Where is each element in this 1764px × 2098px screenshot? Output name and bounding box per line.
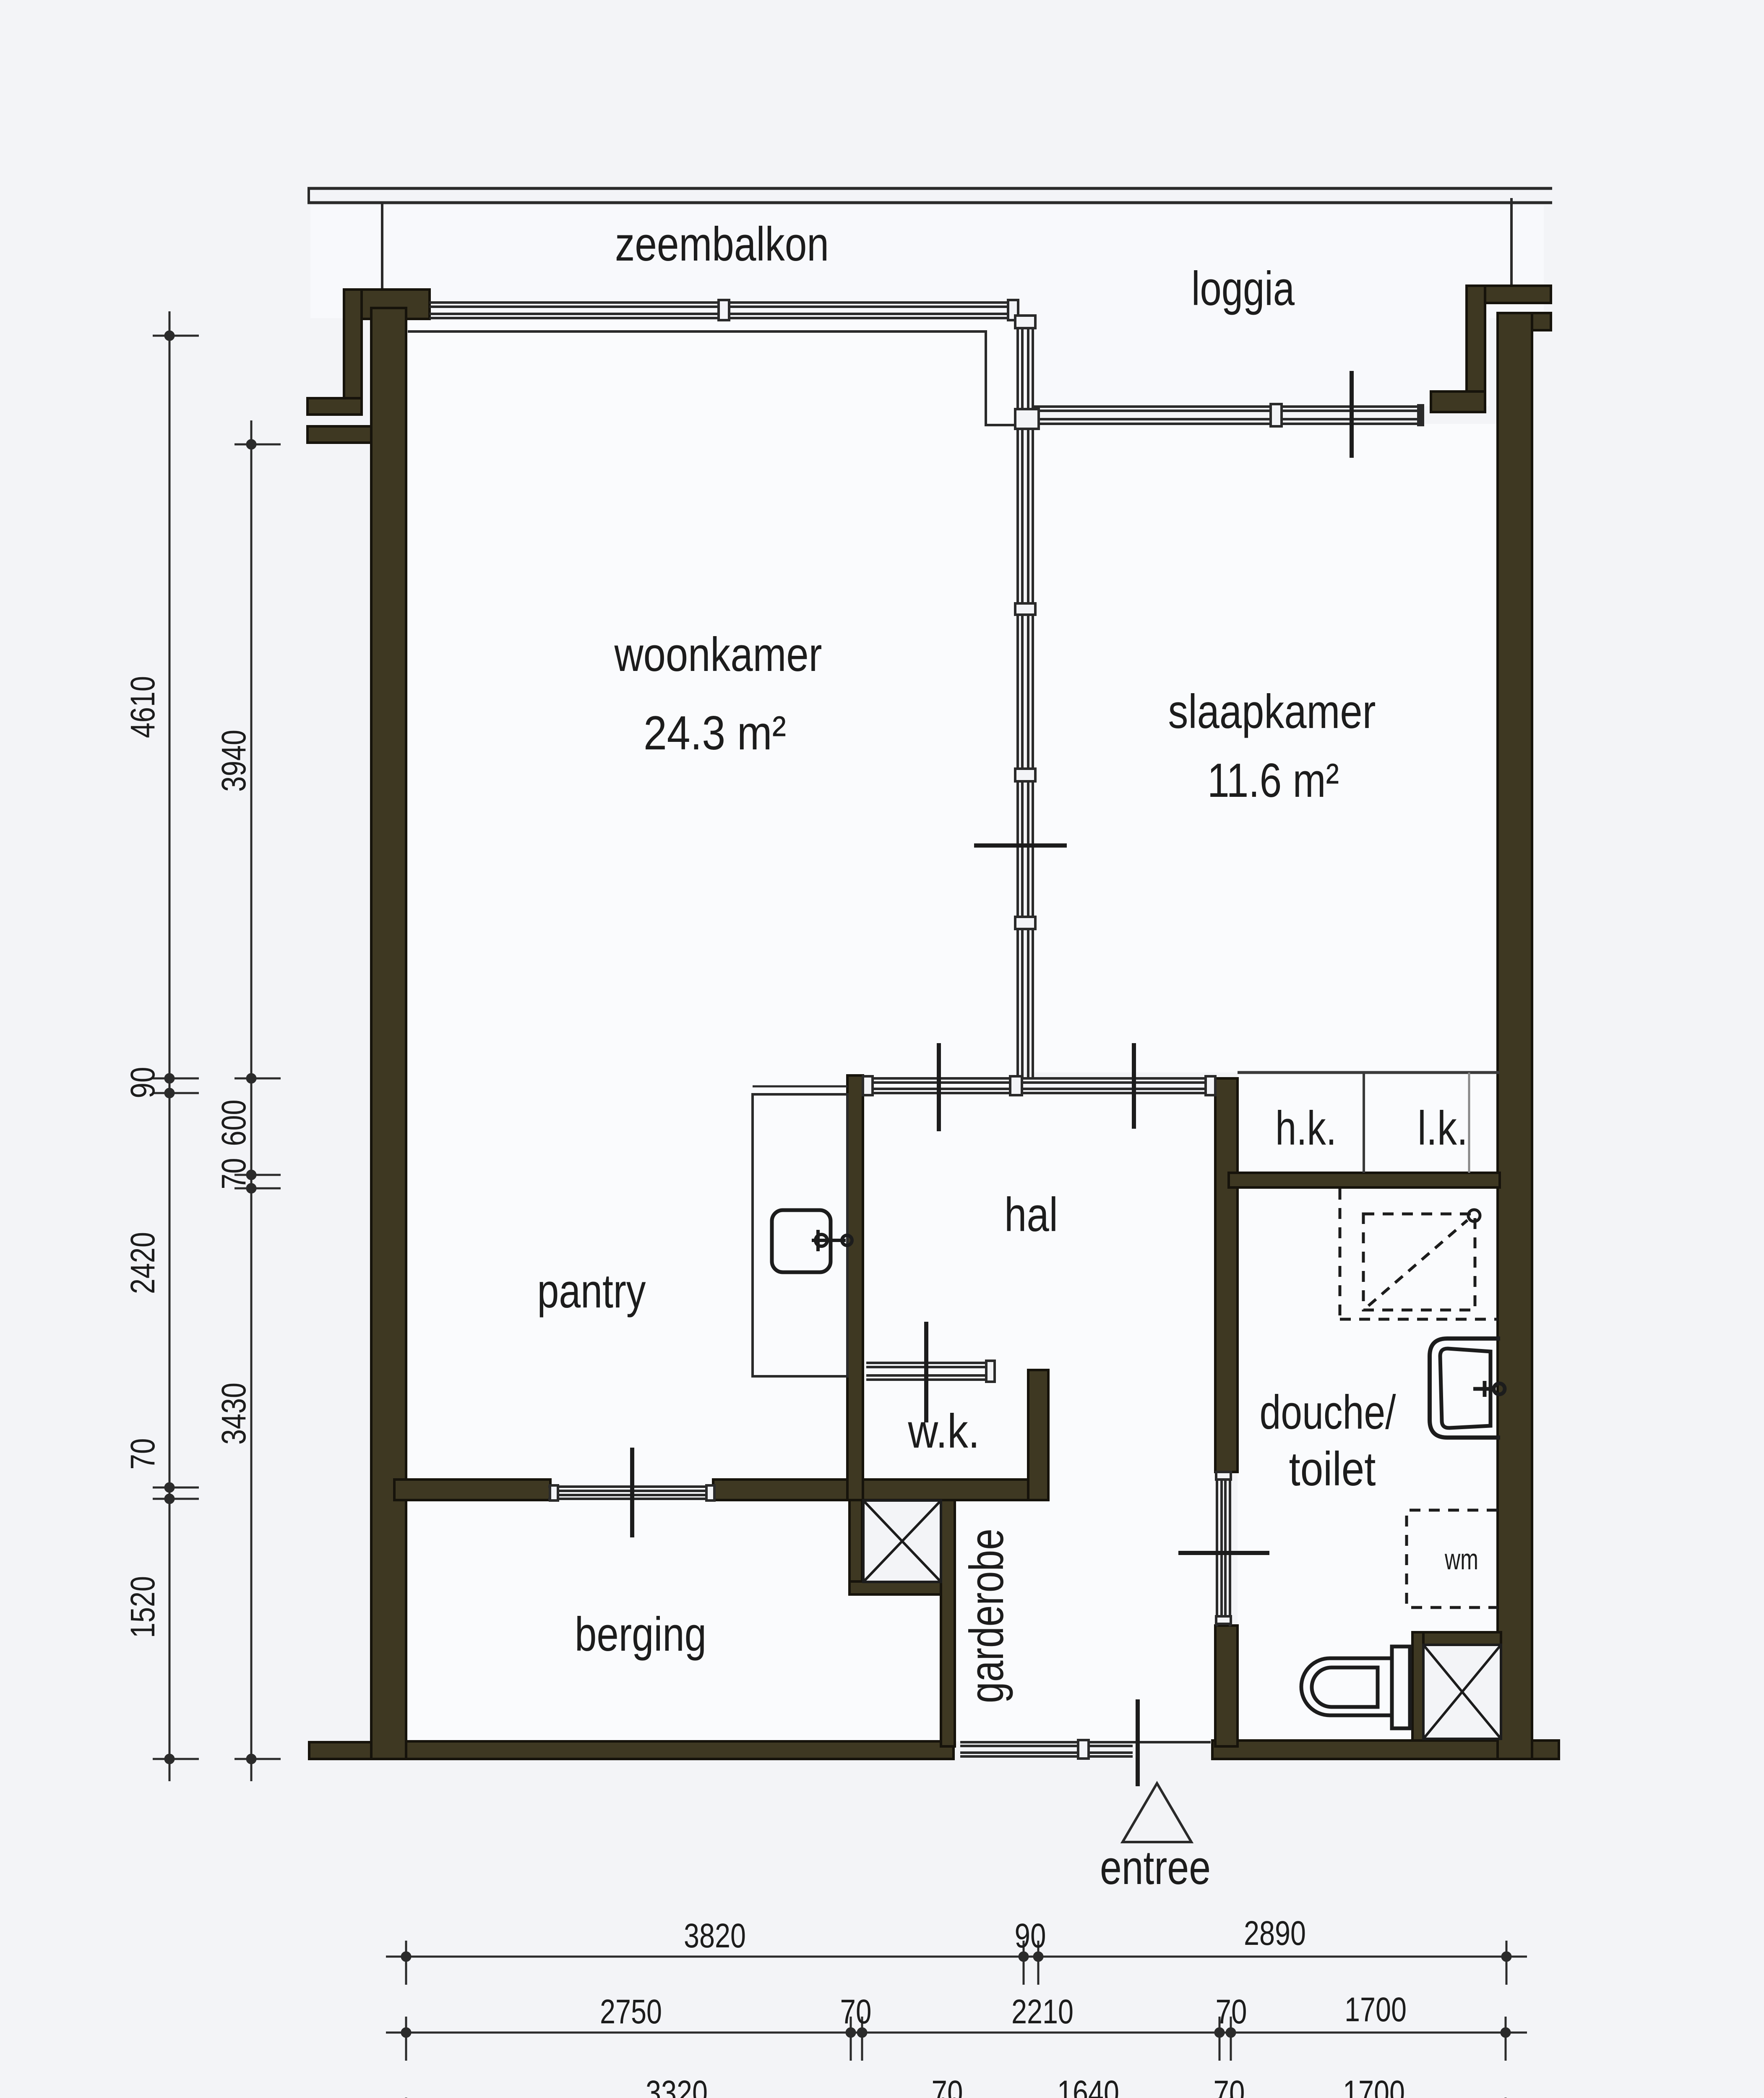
svg-text:zeembalkon: zeembalkon [615, 218, 829, 271]
svg-text:pantry: pantry [537, 1265, 646, 1318]
svg-text:2420: 2420 [124, 1232, 162, 1294]
svg-text:entree: entree [1100, 1841, 1211, 1894]
svg-text:woonkamer: woonkamer [614, 628, 822, 681]
svg-text:slaapkamer: slaapkamer [1168, 685, 1376, 738]
svg-text:70: 70 [1216, 1993, 1247, 2031]
svg-text:4610: 4610 [124, 676, 162, 738]
svg-text:1640: 1640 [1057, 2074, 1119, 2098]
svg-text:70: 70 [932, 2074, 963, 2098]
svg-text:70: 70 [840, 1993, 872, 2031]
svg-text:70: 70 [124, 1438, 162, 1470]
svg-text:wm: wm [1444, 1543, 1478, 1576]
svg-text:90: 90 [1015, 1917, 1046, 1955]
svg-text:3320: 3320 [646, 2074, 708, 2098]
svg-text:berging: berging [575, 1608, 706, 1661]
svg-text:hal: hal [1004, 1188, 1058, 1242]
svg-text:1700: 1700 [1344, 1991, 1407, 2029]
svg-text:24.3 m²: 24.3 m² [644, 707, 786, 760]
svg-text:3430: 3430 [215, 1383, 253, 1445]
svg-text:douche/: douche/ [1260, 1386, 1396, 1439]
svg-text:h.k.: h.k. [1275, 1102, 1337, 1155]
svg-text:garderobe: garderobe [960, 1529, 1014, 1703]
svg-text:loggia: loggia [1191, 262, 1295, 316]
svg-text:90: 90 [124, 1067, 162, 1099]
svg-text:70: 70 [1214, 2074, 1245, 2098]
svg-text:3820: 3820 [684, 1917, 746, 1955]
svg-text:600: 600 [215, 1100, 253, 1146]
svg-text:l.k.: l.k. [1417, 1102, 1468, 1155]
svg-text:2750: 2750 [600, 1993, 662, 2031]
svg-text:w.k.: w.k. [908, 1405, 980, 1458]
svg-text:toilet: toilet [1289, 1443, 1376, 1496]
svg-text:1520: 1520 [124, 1576, 162, 1638]
svg-text:2210: 2210 [1011, 1993, 1074, 2031]
svg-text:3940: 3940 [215, 730, 253, 792]
svg-text:11.6 m²: 11.6 m² [1207, 754, 1339, 807]
svg-text:70: 70 [215, 1158, 253, 1190]
svg-text:2890: 2890 [1244, 1914, 1306, 1952]
svg-text:1700: 1700 [1343, 2074, 1405, 2098]
